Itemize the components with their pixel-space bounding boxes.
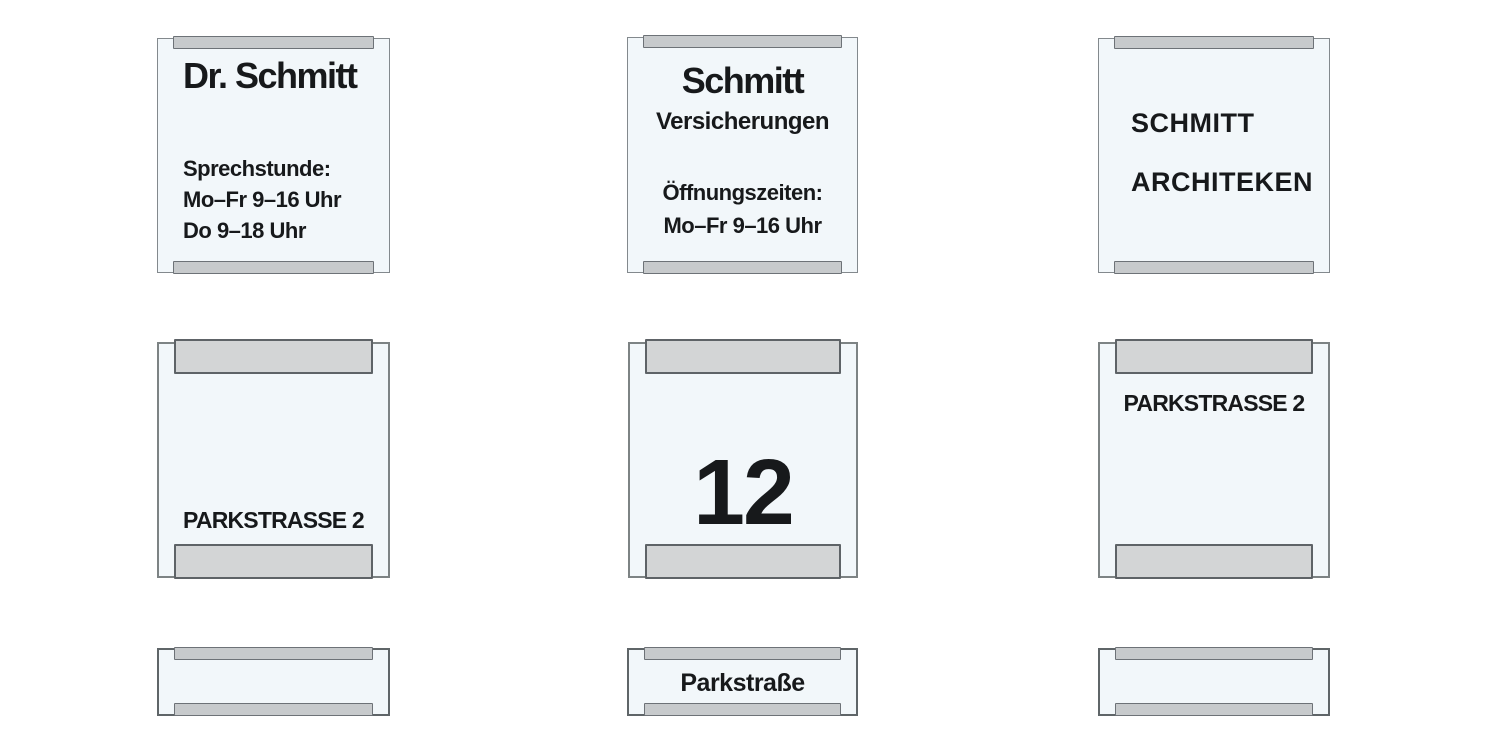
street-label: PARKSTRASSE 2: [1100, 389, 1328, 417]
hours-line: Do 9–18 Uhr: [183, 215, 341, 246]
mounting-rail-bottom: [1115, 544, 1313, 579]
mounting-rail-top: [1115, 647, 1313, 660]
mounting-rail-top: [174, 647, 373, 660]
sign-parkstrasse-strip: Parkstraße: [627, 648, 858, 716]
mounting-rail-bottom: [173, 261, 374, 274]
mounting-rail-top: [644, 647, 841, 660]
sign-schmitt-versicherungen: Schmitt Versicherungen Öffnungszeiten: M…: [627, 37, 858, 273]
company-name-line: SCHMITT: [1131, 107, 1254, 139]
sign-house-number: 12: [628, 342, 858, 578]
mounting-rail-bottom: [643, 261, 842, 274]
sign-hours-block: Öffnungszeiten: Mo–Fr 9–16 Uhr: [628, 176, 857, 242]
signage-mockup-sheet: Dr. Schmitt Sprechstunde: Mo–Fr 9–16 Uhr…: [0, 0, 1490, 746]
hours-line: Sprechstunde:: [183, 153, 341, 184]
sign-empty-strip-left: [157, 648, 390, 716]
mounting-rail-top: [1114, 36, 1314, 49]
sign-title: Dr. Schmitt: [183, 56, 357, 96]
mounting-rail-bottom: [174, 544, 373, 579]
company-name-line: ARCHITEKEN: [1131, 166, 1313, 198]
sign-empty-strip-right: [1098, 648, 1330, 716]
hours-line: Mo–Fr 9–16 Uhr: [183, 184, 341, 215]
mounting-rail-bottom: [174, 703, 373, 716]
sign-parkstrasse-label-top: PARKSTRASSE 2: [1098, 342, 1330, 578]
mounting-rail-top: [645, 339, 841, 374]
sign-subtitle: Versicherungen: [628, 107, 857, 137]
mounting-rail-top: [173, 36, 374, 49]
mounting-rail-bottom: [1115, 703, 1313, 716]
sign-hours-block: Sprechstunde: Mo–Fr 9–16 Uhr Do 9–18 Uhr: [183, 153, 341, 246]
mounting-rail-bottom: [1114, 261, 1314, 274]
mounting-rail-top: [643, 35, 842, 48]
hours-line: Mo–Fr 9–16 Uhr: [628, 209, 857, 242]
street-label: PARKSTRASSE 2: [159, 506, 388, 534]
mounting-rail-bottom: [645, 544, 841, 579]
sign-doctor-schmitt: Dr. Schmitt Sprechstunde: Mo–Fr 9–16 Uhr…: [157, 38, 390, 273]
mounting-rail-bottom: [644, 703, 841, 716]
street-label: Parkstraße: [629, 668, 856, 698]
sign-schmitt-architekten: SCHMITT ARCHITEKEN: [1098, 38, 1330, 273]
mounting-rail-top: [174, 339, 373, 374]
sign-title: Schmitt: [628, 61, 857, 101]
hours-line: Öffnungszeiten:: [628, 176, 857, 209]
mounting-rail-top: [1115, 339, 1313, 374]
sign-parkstrasse-label-bottom: PARKSTRASSE 2: [157, 342, 390, 578]
house-number: 12: [630, 444, 856, 540]
